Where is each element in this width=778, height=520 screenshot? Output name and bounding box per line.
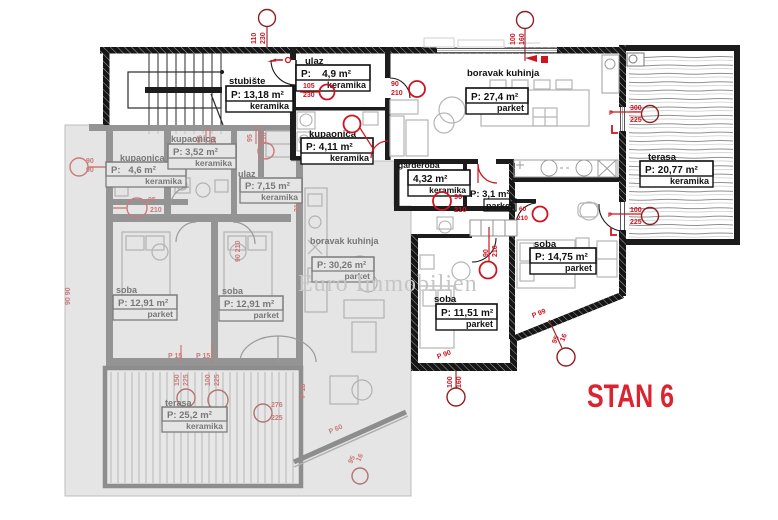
svg-text:keramika: keramika	[330, 153, 370, 163]
svg-text:P: 27,4 m²: P: 27,4 m²	[471, 92, 519, 103]
svg-text:90: 90	[86, 167, 94, 174]
svg-text:P: 11,51 m²: P: 11,51 m²	[441, 308, 494, 319]
svg-text:keramika: keramika	[670, 176, 710, 186]
svg-text:parket: parket	[253, 310, 279, 320]
svg-text:90: 90	[454, 192, 462, 201]
svg-text:210: 210	[391, 90, 403, 97]
svg-text:225: 225	[630, 117, 642, 124]
svg-text:P: 30,26 m²: P: 30,26 m²	[317, 260, 366, 270]
svg-text:100: 100	[630, 207, 642, 214]
svg-text:P: 4,6 m²: P: 4,6 m²	[111, 165, 156, 176]
svg-text:210: 210	[454, 205, 467, 214]
svg-text:230: 230	[260, 32, 267, 44]
svg-text:P: 14,75 m²: P: 14,75 m²	[535, 252, 588, 263]
svg-text:4,32 m²: 4,32 m²	[413, 174, 448, 185]
svg-text:keramika: keramika	[261, 192, 298, 202]
svg-text:210: 210	[150, 207, 162, 214]
svg-text:90: 90	[86, 158, 94, 165]
svg-text:P: P	[608, 213, 612, 219]
svg-text:parket: parket	[497, 103, 524, 113]
svg-text:160: 160	[456, 376, 463, 388]
svg-text:P 15: P 15	[196, 353, 210, 360]
svg-text:P: 12,91 m²: P: 12,91 m²	[118, 298, 168, 309]
svg-text:90 90: 90 90	[65, 287, 72, 305]
svg-text:105: 105	[303, 83, 315, 90]
svg-text:300: 300	[630, 105, 642, 112]
svg-text:keramika: keramika	[195, 158, 232, 168]
svg-text:P: 20,77 m²: P: 20,77 m²	[645, 165, 698, 176]
svg-text:P: P	[609, 111, 613, 117]
svg-text:P: 4,9 m²: P: 4,9 m²	[301, 69, 352, 80]
svg-text:95: 95	[247, 134, 254, 142]
svg-text:P: 3,52 m²: P: 3,52 m²	[173, 147, 218, 158]
svg-text:230: 230	[303, 92, 315, 99]
svg-text:keramika: keramika	[145, 176, 182, 186]
svg-text:garderoba: garderoba	[398, 160, 440, 170]
svg-text:90 210: 90 210	[235, 240, 242, 262]
svg-text:kupaonica: kupaonica	[171, 134, 217, 144]
svg-text:100: 100	[205, 374, 212, 386]
svg-text:boravak kuhinja: boravak kuhinja	[310, 236, 380, 246]
svg-text:100: 100	[447, 376, 454, 388]
svg-text:parket: parket	[466, 319, 493, 329]
svg-text:P: 25,2 m²: P: 25,2 m²	[167, 410, 212, 421]
svg-text:P: 4,11 m²: P: 4,11 m²	[306, 142, 353, 153]
svg-text:90: 90	[483, 249, 490, 257]
svg-text:160: 160	[519, 33, 526, 45]
svg-text:110: 110	[251, 33, 258, 44]
svg-text:225: 225	[183, 374, 190, 386]
svg-text:keramika: keramika	[186, 421, 223, 431]
svg-text:100: 100	[510, 33, 517, 45]
svg-text:parket: parket	[147, 309, 173, 319]
svg-text:225: 225	[271, 415, 283, 422]
svg-text:parket: parket	[486, 201, 513, 211]
svg-text:boravak kuhinja: boravak kuhinja	[467, 68, 540, 79]
svg-text:STAN 6: STAN 6	[587, 378, 674, 414]
svg-text:parket: parket	[565, 263, 592, 273]
svg-text:210: 210	[261, 132, 268, 144]
svg-text:210: 210	[517, 215, 528, 222]
svg-text:P: 3,1 m²: P: 3,1 m²	[470, 189, 510, 200]
svg-text:P: 13,18 m²: P: 13,18 m²	[231, 90, 284, 101]
svg-text:keramika: keramika	[250, 101, 290, 111]
svg-text:P: 7,15 m²: P: 7,15 m²	[245, 181, 290, 192]
svg-text:60: 60	[519, 206, 527, 213]
svg-text:225: 225	[630, 219, 642, 226]
svg-text:P 18: P 18	[300, 384, 307, 398]
svg-text:150: 150	[174, 374, 181, 386]
svg-text:90: 90	[391, 81, 399, 88]
svg-text:soba: soba	[222, 286, 244, 296]
svg-text:95: 95	[148, 197, 156, 204]
svg-text:P: 12,91 m²: P: 12,91 m²	[224, 299, 274, 310]
svg-text:210: 210	[492, 245, 499, 257]
svg-text:225: 225	[214, 374, 221, 386]
svg-text:P 15: P 15	[168, 353, 182, 360]
svg-text:276: 276	[271, 402, 283, 409]
svg-text:soba: soba	[116, 285, 138, 295]
